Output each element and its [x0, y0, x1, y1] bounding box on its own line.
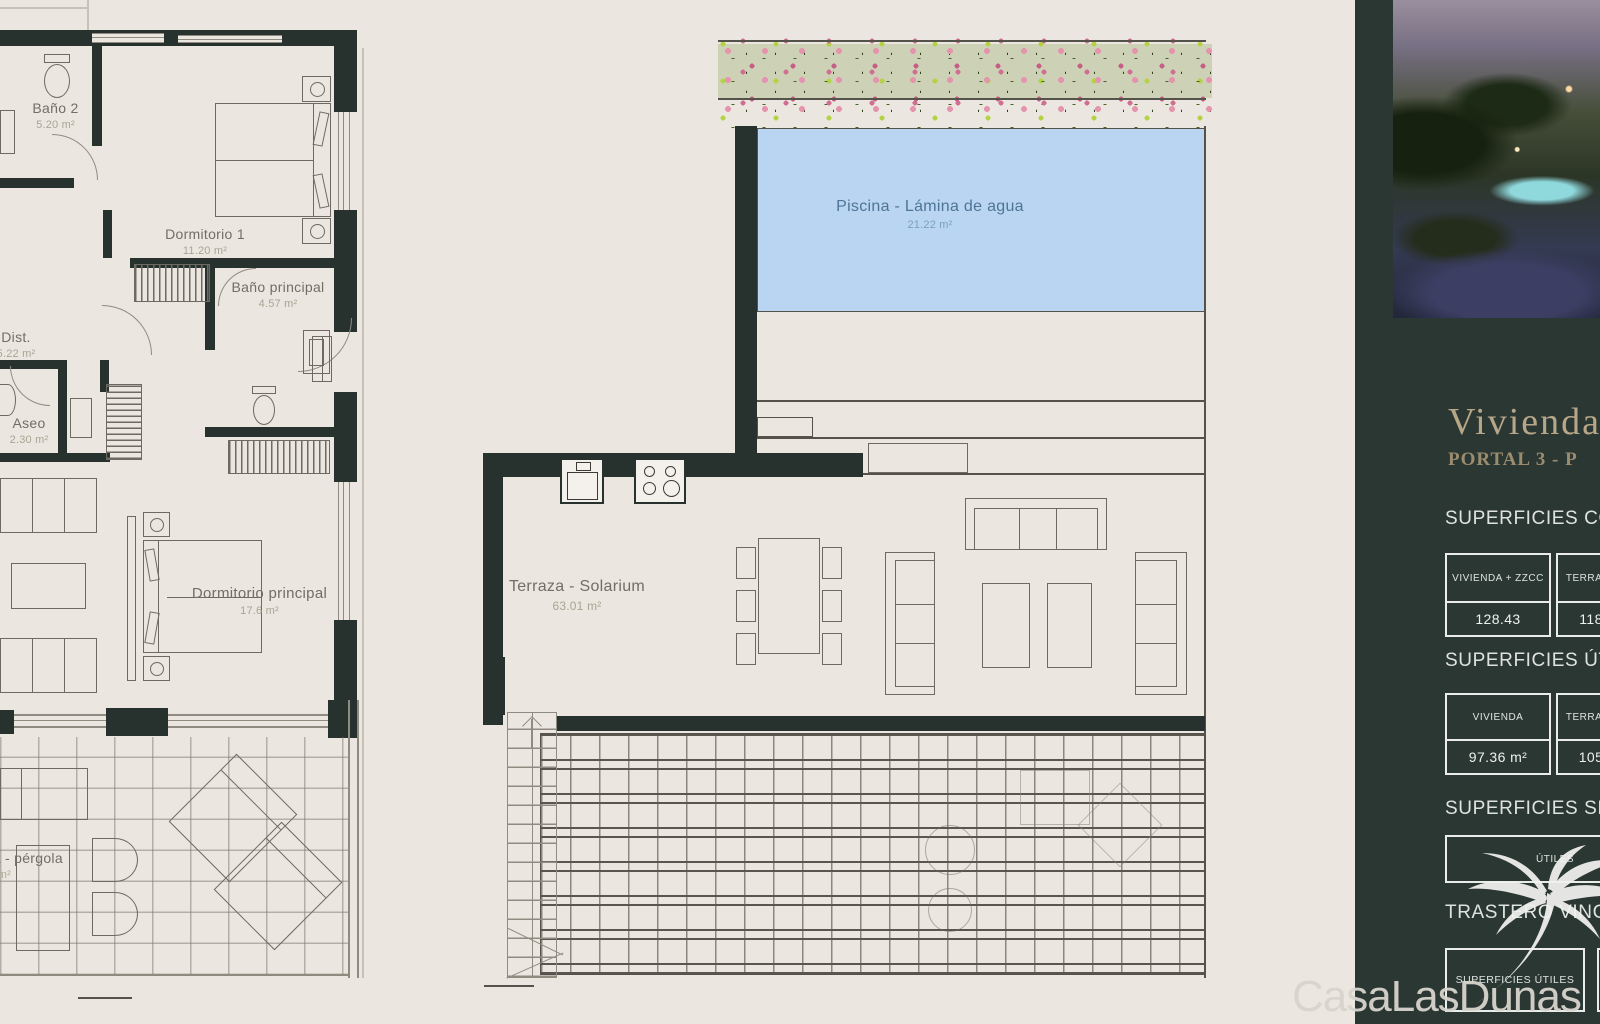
toilet-symbol — [44, 64, 70, 98]
window-symbol — [92, 33, 164, 43]
round-chair-symbol — [92, 892, 138, 936]
glazing-line — [0, 726, 348, 728]
room-label-dormitorio1: Dormitorio 1 11.20 m² — [150, 226, 260, 257]
room-area: 63.01 m² — [502, 599, 652, 613]
room-label-piscina: Piscina - Lámina de agua 21.22 m² — [805, 198, 1055, 231]
property-line — [87, 0, 89, 30]
room-name: Dormitorio 1 — [165, 226, 245, 242]
room-area: 5.22 m² — [0, 348, 46, 360]
watermark: CasaLasDunas — [1292, 972, 1581, 1022]
brochure-page: Baño 2 5.20 m² Dormitorio 1 11.20 m² Bañ… — [0, 0, 1600, 1024]
room-area: 2.30 m² — [0, 434, 58, 446]
room-label-bano2: Baño 2 5.20 m² — [8, 100, 103, 131]
bench-symbol — [868, 443, 968, 473]
window-symbol — [338, 482, 350, 620]
area-cell: VIVIENDA + ZZCC 128.43 — [1445, 553, 1551, 637]
step-line — [757, 437, 1205, 439]
toilet-symbol — [0, 384, 16, 416]
door-arc — [102, 305, 152, 355]
deck-table-symbol — [928, 888, 972, 932]
room-label-dist: Dist. 5.22 m² — [0, 329, 46, 360]
terrace-edge — [348, 700, 350, 978]
toilet-symbol — [252, 386, 276, 394]
terrace-edge — [357, 700, 359, 978]
chair-symbol — [822, 590, 842, 622]
room-label-solarium: Terraza - Solarium 63.01 m² — [502, 578, 652, 613]
section-heading: SUPERFICIES ÚTILES — [1445, 650, 1600, 672]
sofa-symbol — [0, 478, 97, 533]
project-photo — [1393, 0, 1600, 318]
toilet-symbol — [253, 395, 275, 425]
room-name: Piscina - Lámina de agua — [836, 198, 1024, 215]
chair-symbol — [736, 633, 756, 665]
toilet-symbol — [44, 54, 70, 63]
room-name: Terraza - Solarium — [509, 578, 645, 595]
glazing-line — [0, 720, 348, 721]
area-cell-label: TERRAZA — [1558, 555, 1600, 603]
radiator-symbol — [312, 336, 332, 382]
stair-arrow-icon — [522, 716, 542, 736]
room-name: Dormitorio principal — [192, 585, 327, 602]
sofa-symbol — [965, 498, 1107, 550]
room-name: Terraza - pérgola — [0, 850, 63, 866]
chair-symbol — [736, 547, 756, 579]
door-leaf-symbol — [70, 398, 92, 438]
sofa-symbol — [1135, 552, 1187, 695]
wardrobe-symbol — [134, 264, 210, 302]
room-label-aseo: Aseo 2.30 m² — [0, 415, 58, 446]
room-area: 5.20 m² — [8, 119, 103, 131]
bed-symbol — [215, 103, 331, 217]
section-heading: SUPERFICIES SECUNDARIAS — [1445, 798, 1600, 820]
side-table-symbol — [1047, 583, 1092, 668]
area-cell-value: 128.43 — [1447, 603, 1549, 635]
property-line — [0, 7, 88, 9]
side-table-symbol — [982, 583, 1030, 668]
partition-wall — [92, 46, 102, 146]
section-heading: SUPERFICIES CONSTRUIDAS — [1445, 508, 1600, 530]
column — [0, 710, 14, 734]
wall — [557, 716, 1205, 731]
window-symbol — [178, 35, 282, 43]
room-area: 11.20 m² — [150, 245, 260, 257]
kitchen-sink-symbol — [560, 458, 604, 504]
area-cell-value: 118 — [1558, 603, 1600, 635]
coffee-table-symbol — [11, 563, 86, 609]
wardrobe-symbol — [228, 440, 330, 474]
dimension-tick — [484, 985, 534, 987]
staircase — [507, 712, 557, 978]
door-arc — [10, 366, 50, 406]
room-name: Baño principal — [232, 279, 325, 295]
lounger-symbol — [0, 768, 88, 820]
headboard-panel-symbol — [127, 516, 136, 681]
sofa-symbol — [0, 638, 97, 693]
sofa-symbol — [885, 552, 935, 695]
chair-symbol — [736, 590, 756, 622]
partition-wall — [205, 427, 335, 437]
room-name: Dist. — [1, 329, 31, 345]
nightstand-symbol — [143, 656, 170, 681]
cooktop-symbol — [634, 458, 686, 504]
step-line — [757, 400, 1205, 402]
deck-furniture — [1020, 770, 1090, 825]
page-subtitle: PORTAL 3 - P — [1448, 449, 1578, 471]
area-cell-label: VIVIENDA — [1447, 695, 1549, 741]
nightstand-symbol — [302, 218, 331, 244]
area-cell-value: 105 — [1558, 741, 1600, 773]
wall — [334, 210, 357, 332]
dimension-tick — [78, 997, 132, 999]
chair-symbol — [822, 633, 842, 665]
property-line — [362, 48, 364, 978]
area-cell: VIVIENDA 97.36 m² — [1445, 693, 1551, 775]
area-cell: TERRAZA 118 — [1556, 553, 1600, 637]
room-area: 4.57 m² — [222, 298, 334, 310]
wall — [334, 30, 357, 112]
wall — [485, 657, 505, 715]
room-area: 21.22 m² — [805, 219, 1055, 231]
page-title: Vivienda — [1448, 400, 1600, 444]
nightstand-symbol — [143, 512, 170, 537]
nightstand-symbol — [302, 76, 331, 102]
area-cell: TERRAZA 105 — [1556, 693, 1600, 775]
room-label-pergola: Terraza - pérgola 42.53 m² — [0, 850, 142, 881]
deck-table-symbol — [925, 825, 975, 875]
window-symbol — [338, 112, 350, 210]
area-cell-value: 97.36 m² — [1447, 741, 1549, 773]
column — [106, 708, 168, 736]
room-area: 42.53 m² — [0, 869, 142, 881]
dining-table-symbol — [758, 538, 820, 654]
partition-wall — [58, 360, 67, 462]
deck-pergola — [540, 733, 1205, 975]
column — [328, 700, 357, 738]
room-name: Baño 2 — [32, 100, 78, 116]
wardrobe-symbol — [106, 384, 142, 460]
planter-line — [718, 40, 1206, 42]
room-area: 17.6 m² — [182, 605, 337, 617]
chair-symbol — [822, 547, 842, 579]
room-label-bano-principal: Baño principal 4.57 m² — [222, 279, 334, 310]
partition-wall — [0, 453, 110, 462]
area-cell-label: TERRAZA — [1558, 695, 1600, 741]
area-cell-label: VIVIENDA + ZZCC — [1447, 555, 1549, 603]
wall — [334, 392, 357, 482]
wall — [334, 620, 357, 706]
flower-border — [718, 36, 1212, 128]
glazing-line — [0, 714, 348, 716]
step-notch — [757, 417, 813, 437]
room-label-dormitorio-principal: Dormitorio principal 17.6 m² — [182, 585, 337, 617]
room-name: Aseo — [12, 415, 45, 431]
planter-line — [718, 98, 1206, 100]
partition-wall — [103, 210, 112, 258]
terrace-edge — [0, 974, 350, 976]
wall — [735, 126, 757, 473]
